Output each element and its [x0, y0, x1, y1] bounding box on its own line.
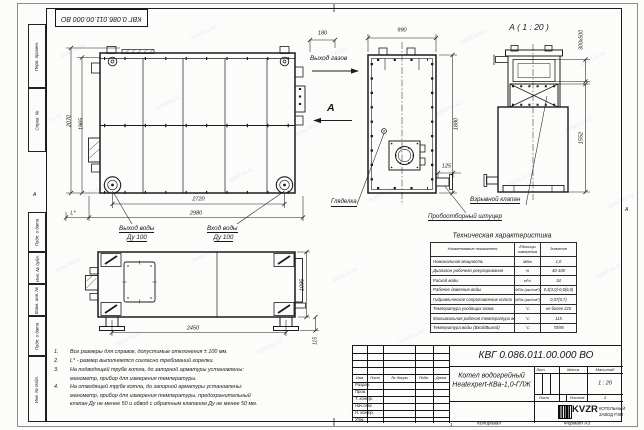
spec-table-title: Техническая характеристика [452, 233, 551, 240]
dim-side-height: 1880 [454, 118, 460, 130]
dim-bottom-foot: 115 [313, 337, 318, 345]
spec-row-unit: °С [514, 313, 540, 323]
dim-side-offset: 180 [318, 31, 327, 37]
tb-lit-label: Лит. [536, 368, 545, 372]
label-sight-glass: Гляделка [331, 199, 357, 207]
spec-row-name: Диапазон рабочего регулирования [431, 266, 514, 276]
tb-scale-value: 1 : 20 [598, 381, 612, 387]
spec-row-value: 0,3(3,0)-0,6(6,0) [540, 285, 576, 295]
tb-company-line1: КОТЕЛЬНЫЙ [599, 407, 625, 411]
line [534, 373, 623, 374]
note-text: L* - размер выполняется согласно требова… [70, 359, 214, 364]
spec-row-value: 40-100 [540, 266, 576, 276]
note-number: 4. [54, 385, 59, 390]
dim-rear-height: 1552 [579, 132, 585, 144]
line [550, 373, 551, 394]
note-number: 1. [54, 350, 59, 355]
dim-bottom-depth: 1095 [300, 278, 306, 290]
line [353, 417, 449, 418]
tb-col-podp: Подп. [419, 376, 429, 380]
spec-row-name: Гидравлическое сопротивление котла [431, 294, 514, 304]
spec-row-value: 0,07(0,7) [540, 294, 576, 304]
tb-col-data: Дата [436, 376, 446, 380]
view-direction-letter: А [327, 103, 335, 114]
title-block: Изм. Лист № докум. Подп. Дата Разраб. Пр… [352, 345, 622, 422]
drawing-sheet: kotel-kv.kz kotel-kv.kz kotel-kv.kz kote… [0, 0, 644, 430]
label-water-inlet-dn: Ду 100 [214, 235, 234, 243]
label-explosion-valve: Взрывной клапан [470, 197, 520, 205]
dim-side-width: 990 [397, 28, 406, 34]
dim-front-height-outer: 2070 [67, 115, 73, 127]
tb-product-name-2: Heatexpert-КВа-1,0-ГЛЖ [452, 381, 530, 388]
note-text: манометр, прибор для измерения температу… [70, 394, 251, 399]
spec-row-unit: м³/ч [514, 275, 540, 285]
spec-row-name: Расход воды [431, 275, 514, 285]
note-text: На отводящей трубе котла, до запорной ар… [70, 385, 242, 390]
tb-col-docum: № докум. [391, 376, 408, 380]
spec-row-value: 34 [540, 275, 576, 285]
line [353, 367, 449, 368]
spec-row-name: Температура воды (Вход/Выход) [431, 323, 514, 333]
dim-front-width-wheels: 2720 [192, 197, 204, 203]
spec-header-unit: Единицы измерения [514, 243, 540, 256]
copied-label: Копировал [477, 423, 501, 428]
dim-front-height-inner: 1965 [79, 118, 85, 130]
line [449, 346, 450, 423]
label-water-outlet-dn: Ду 100 [127, 235, 147, 243]
spec-table: Наименование показателя Единицы измерени… [430, 242, 577, 333]
tb-mass-label: Масса [567, 368, 579, 372]
spec-row-unit: °С [514, 304, 540, 314]
front-view [89, 47, 306, 194]
kvzr-logo-icon [558, 405, 572, 419]
spec-row-unit: МПа (кгс/см²) [514, 285, 540, 295]
note-text: манометр, прибор для измерения температу… [70, 377, 197, 382]
dim-front-width-overall: 2980 [190, 211, 202, 217]
spec-row-unit: % [514, 266, 540, 276]
line [449, 401, 623, 402]
tb-row-razrab: Разраб. [355, 383, 370, 387]
tb-company-line2: ЗАВОД РЭП [599, 413, 623, 417]
spec-row-name: Рабочее давление воды [431, 285, 514, 295]
tb-scale-label: Масштаб [596, 368, 615, 372]
line [353, 360, 449, 361]
rear-view [484, 44, 568, 200]
tb-row-utv: Утв. [355, 418, 365, 422]
dim-side-stub: 125 [442, 164, 451, 170]
tb-product-name-1: Котел водогрейный [458, 372, 525, 379]
format-label: Формат А3 [564, 423, 590, 428]
spec-header-value: Значение [540, 243, 576, 256]
dim-bottom-width: 2450 [187, 326, 199, 332]
line [433, 346, 434, 423]
tb-col-izm: Изм. [356, 376, 364, 380]
dim-front-burner-length: L* [70, 211, 75, 217]
line [415, 346, 416, 423]
spec-header-name: Наименование показателя [431, 243, 514, 256]
line [542, 373, 543, 394]
label-sampling-fitting: Пробоотборный штуцер [428, 214, 502, 222]
line [353, 389, 449, 390]
label-water-inlet: Вход воды [207, 226, 238, 234]
bottom-view-dimension-lines [110, 250, 319, 336]
spec-row-value: 1,0 [540, 256, 576, 266]
line [353, 353, 449, 354]
side-view [368, 42, 453, 205]
line [587, 366, 588, 401]
line [559, 366, 560, 401]
line [383, 346, 384, 423]
tb-doc-number: КВГ 0.086.011.00.000 ВО [479, 351, 594, 361]
tb-sheet-label: Лист [539, 396, 549, 400]
spec-row-unit: МВт [514, 256, 540, 266]
bottom-view [86, 252, 306, 331]
tb-row-tkontr: Т. контр. [355, 397, 373, 401]
note-text: Все размеры для справок, допустимые откл… [70, 350, 228, 355]
spec-row-name: Температура уходящих газов [431, 304, 514, 314]
kvzr-logo-text: KVZR [572, 405, 598, 415]
note-text: клапан Ду не менее 50 и обвод с обратным… [70, 402, 257, 407]
spec-row-value: 115 [540, 313, 576, 323]
tb-sheets-label: Листов [570, 396, 585, 400]
label-gas-outlet: Выход газов [310, 56, 347, 62]
spec-row-name: Максимальная рабочая температура воды [431, 313, 514, 323]
label-water-outlet: Выход воды [119, 226, 154, 234]
spec-row-unit: °С [514, 323, 540, 333]
note-text: На подводящей трубе котла, до запорной а… [70, 368, 244, 373]
fold-mark: 1 [450, 423, 452, 427]
line [566, 394, 567, 401]
tb-row-nkontr: Н. контр. [355, 411, 374, 415]
spec-row-value: 70/95 [540, 323, 576, 333]
rear-view-title: А ( 1 : 20 ) [509, 22, 549, 31]
note-number: 3. [54, 368, 59, 373]
dim-rear-flue: 300х500 [579, 30, 584, 50]
gas-flow-arrow-icon [351, 68, 359, 73]
tb-col-list: Лист [370, 376, 380, 380]
spec-row-unit: МПа (кгс/см²) [514, 294, 540, 304]
spec-row-name: Номинальная мощность [431, 256, 514, 266]
view-direction-arrow-icon [313, 118, 321, 123]
tb-sheets-value: 1 [604, 395, 606, 399]
tb-row-nachotd: Нач.отд. [355, 404, 373, 408]
tb-row-prov: Пров. [355, 390, 366, 394]
note-number: 2. [54, 359, 59, 364]
spec-row-value: не более 220 [540, 304, 576, 314]
